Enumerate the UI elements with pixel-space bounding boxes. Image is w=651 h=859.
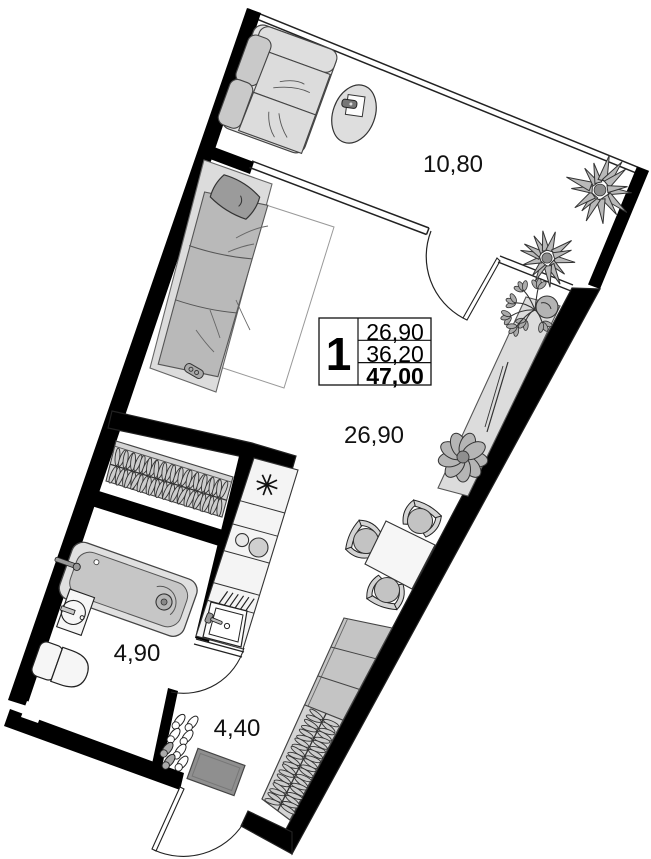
svg-text:26,90: 26,90	[344, 422, 404, 449]
svg-text:1: 1	[326, 328, 352, 380]
svg-text:4,90: 4,90	[114, 640, 161, 667]
svg-text:47,00: 47,00	[366, 363, 424, 389]
svg-text:10,80: 10,80	[423, 151, 483, 178]
svg-text:4,40: 4,40	[214, 715, 261, 742]
